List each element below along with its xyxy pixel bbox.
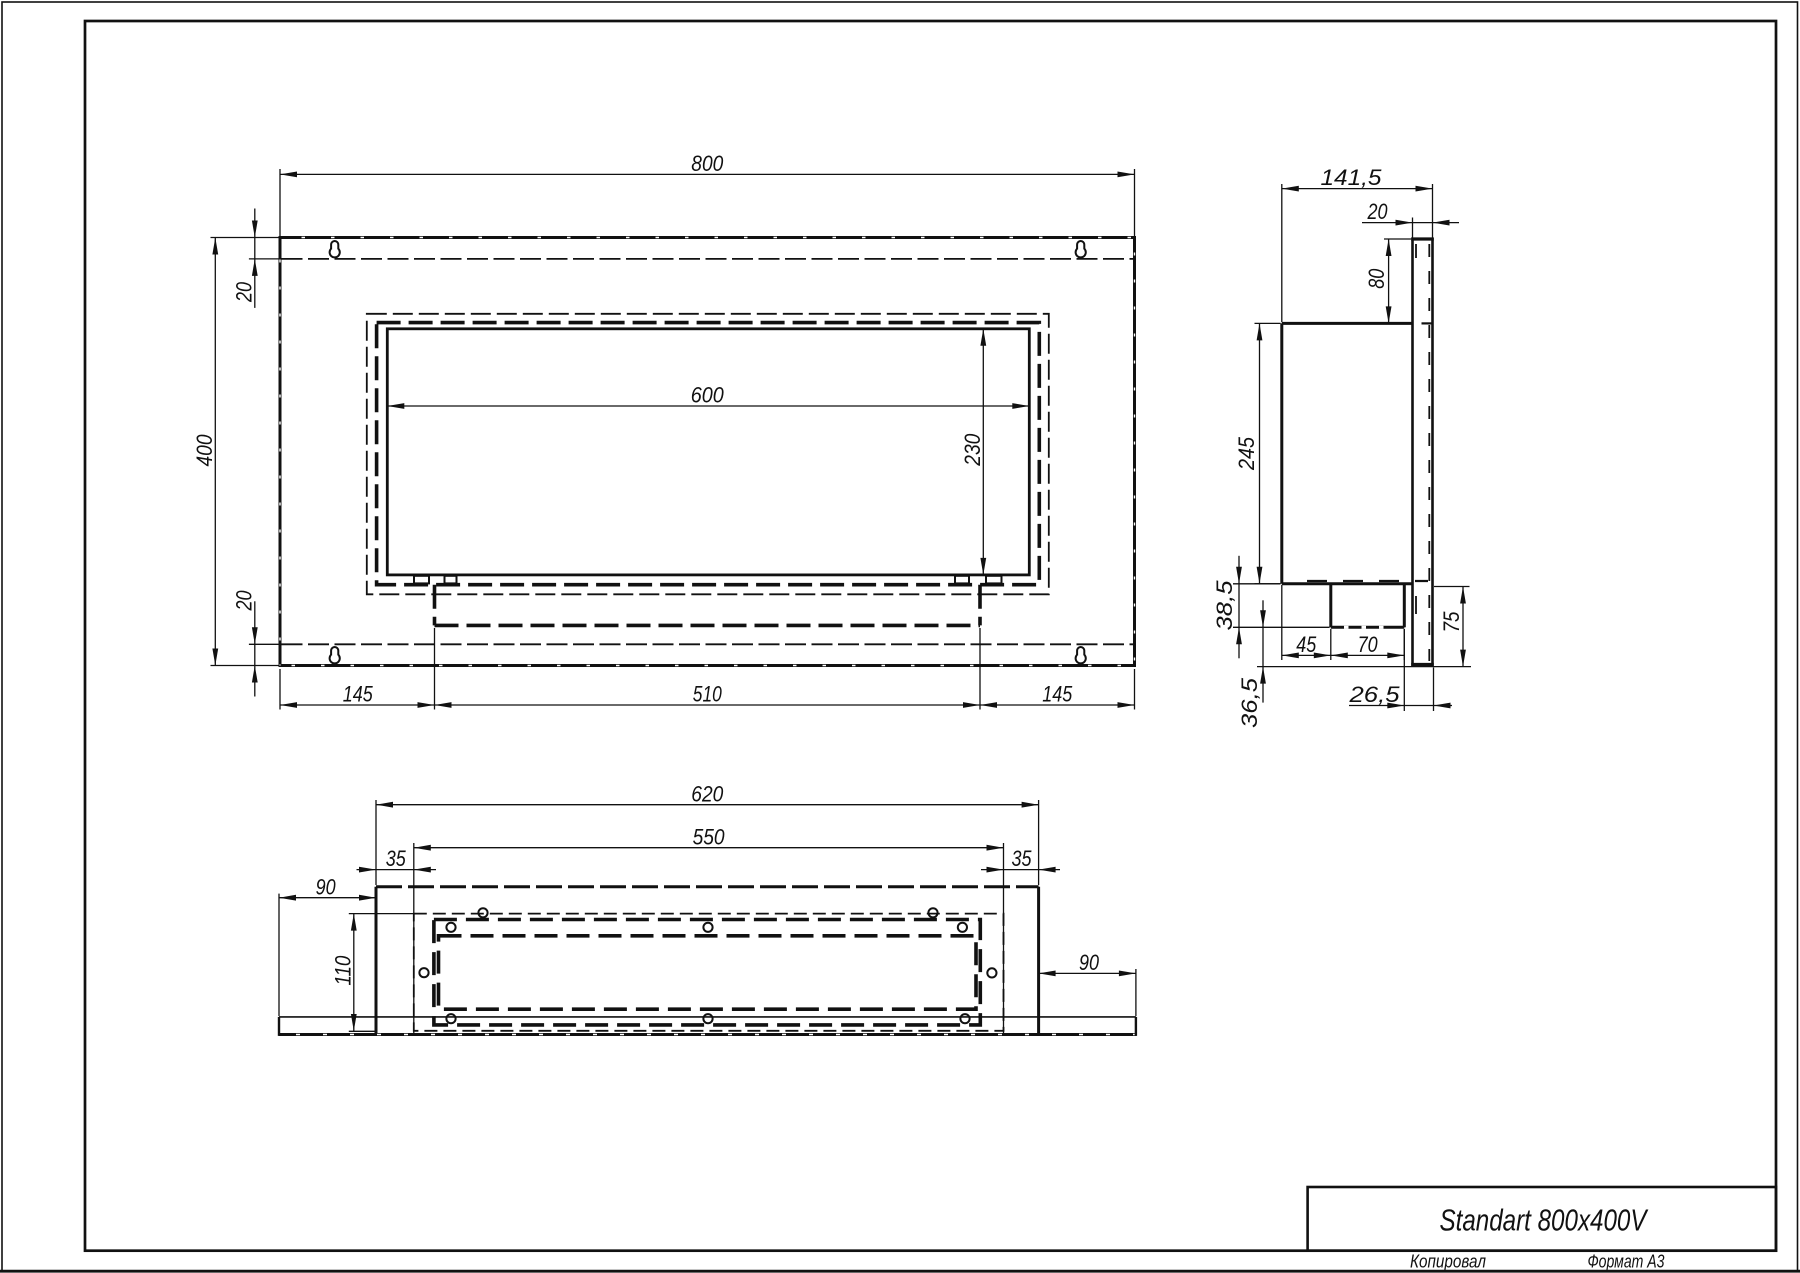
svg-text:145: 145 (343, 682, 373, 707)
svg-text:600: 600 (691, 383, 724, 408)
svg-text:20: 20 (231, 590, 256, 611)
svg-text:90: 90 (316, 874, 336, 899)
svg-text:Копировал: Копировал (1410, 1251, 1486, 1271)
svg-text:20: 20 (231, 282, 256, 303)
svg-text:75: 75 (1439, 611, 1464, 632)
svg-text:Standart 800x400V: Standart 800x400V (1440, 1203, 1650, 1238)
svg-text:36,5: 36,5 (1237, 677, 1262, 728)
svg-text:35: 35 (386, 846, 406, 871)
svg-text:35: 35 (1012, 846, 1032, 871)
svg-text:110: 110 (330, 955, 355, 985)
svg-text:230: 230 (960, 433, 985, 466)
svg-text:400: 400 (192, 434, 217, 466)
svg-text:Формат А3: Формат А3 (1588, 1251, 1665, 1271)
svg-text:510: 510 (693, 682, 722, 707)
svg-text:20: 20 (1367, 199, 1388, 224)
svg-text:550: 550 (693, 824, 725, 849)
svg-text:90: 90 (1079, 950, 1099, 975)
svg-text:45: 45 (1296, 632, 1316, 657)
svg-text:620: 620 (691, 781, 723, 806)
svg-text:26,5: 26,5 (1348, 682, 1400, 707)
svg-text:800: 800 (691, 151, 723, 176)
svg-text:141,5: 141,5 (1321, 165, 1383, 190)
svg-text:245: 245 (1234, 437, 1259, 471)
svg-text:70: 70 (1358, 632, 1378, 657)
svg-text:80: 80 (1364, 268, 1389, 288)
svg-text:145: 145 (1042, 682, 1072, 707)
svg-text:38,5: 38,5 (1212, 580, 1237, 631)
